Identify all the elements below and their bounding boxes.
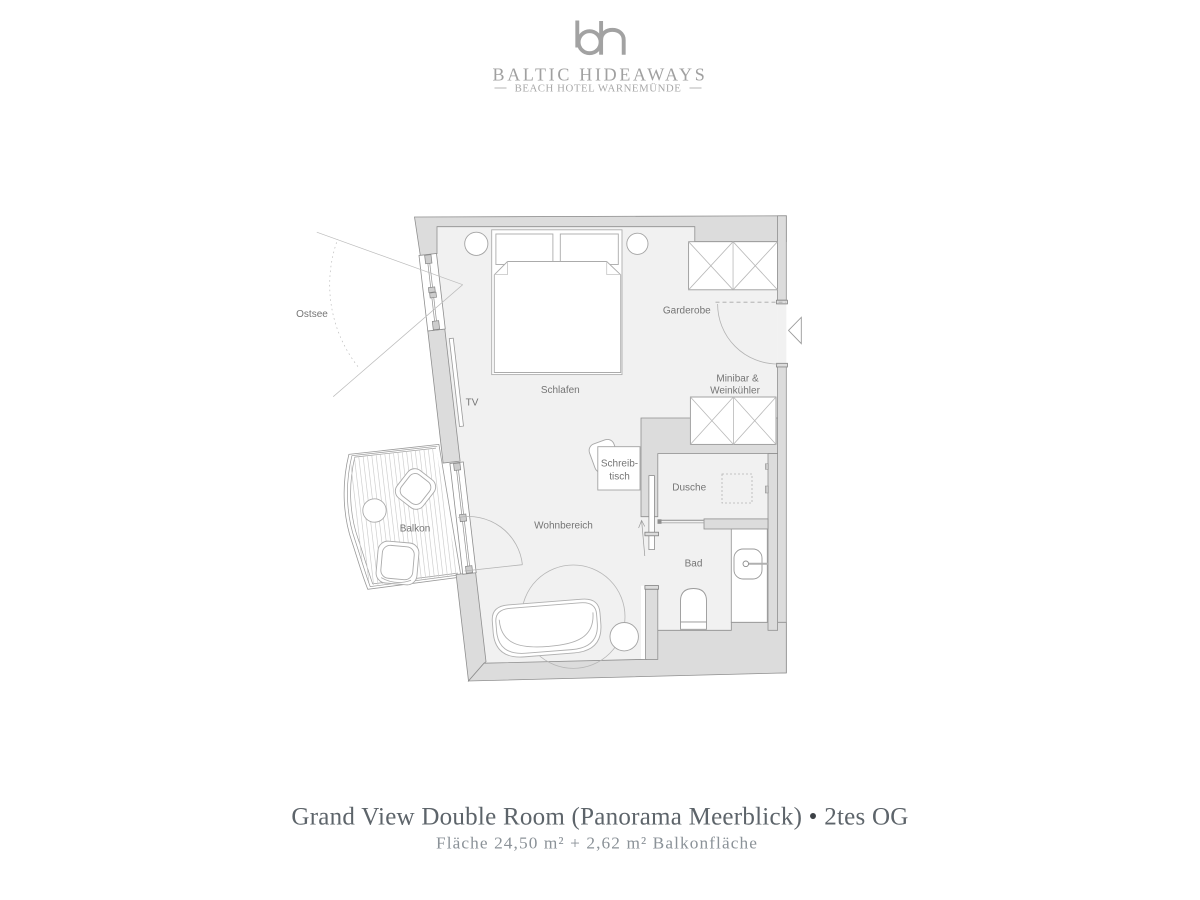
- svg-text:BEACH HOTEL WARNEMÜNDE: BEACH HOTEL WARNEMÜNDE: [515, 83, 682, 95]
- svg-text:TV: TV: [466, 397, 479, 408]
- svg-text:Minibar &: Minibar &: [716, 374, 759, 385]
- svg-text:Schlafen: Schlafen: [541, 385, 580, 396]
- svg-text:Weinkühler: Weinkühler: [710, 386, 761, 397]
- svg-text:Grand View Double Room (Panora: Grand View Double Room (Panorama Meerbli…: [291, 803, 908, 830]
- svg-text:Ostsee: Ostsee: [296, 309, 328, 320]
- svg-text:Fläche 24,50 m² + 2,62 m² Balk: Fläche 24,50 m² + 2,62 m² Balkonfläche: [436, 834, 758, 853]
- svg-text:Garderobe: Garderobe: [663, 306, 711, 317]
- svg-text:Balkon: Balkon: [400, 524, 431, 535]
- svg-text:Bad: Bad: [685, 558, 703, 569]
- svg-text:Wohnbereich: Wohnbereich: [534, 521, 593, 532]
- svg-text:Schreib-: Schreib-: [601, 459, 638, 470]
- svg-text:tisch: tisch: [609, 472, 630, 483]
- svg-text:BALTIC HIDEAWAYS: BALTIC HIDEAWAYS: [493, 65, 708, 85]
- svg-text:Dusche: Dusche: [672, 483, 706, 494]
